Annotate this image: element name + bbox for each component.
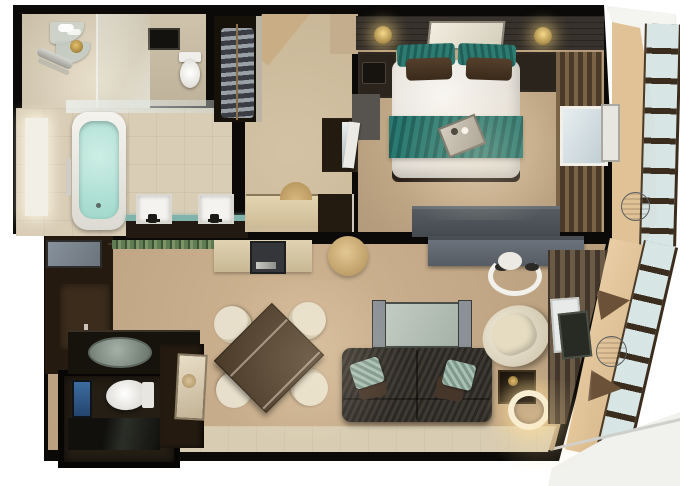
round-pouf — [328, 236, 368, 276]
toiletry-bottles — [58, 24, 74, 32]
coffee-machine-tray — [256, 262, 276, 269]
suite-floorplan — [0, 0, 680, 486]
sconce-left — [374, 26, 392, 44]
bathtub-drain — [96, 203, 101, 208]
ceiling-vent — [148, 28, 180, 50]
sofa-seam — [416, 350, 418, 420]
tile-walkway-lines — [172, 426, 556, 452]
side-table-decor — [508, 376, 518, 386]
balcony-round-table-upper — [621, 192, 650, 221]
nightstand-right — [514, 52, 558, 92]
shower-screen-panel — [25, 118, 48, 216]
guest-toilet-tank — [142, 382, 154, 408]
faucet-left — [148, 214, 157, 223]
towel-bar — [66, 158, 71, 196]
mosaic-backsplash — [112, 240, 216, 249]
bedroom-dresser — [412, 206, 560, 237]
kitchenette-counter — [46, 240, 102, 268]
glass-partition — [96, 14, 150, 108]
glass-tray — [88, 337, 152, 368]
living-window-pane — [558, 311, 593, 360]
faucet-right — [210, 214, 219, 223]
entry-wall-tan — [330, 14, 358, 54]
telephone — [362, 62, 386, 84]
balcony-window-frame — [601, 104, 620, 162]
coffee-table-frame-left — [372, 300, 386, 348]
sconce-right — [534, 27, 552, 45]
pillow-brown-left — [406, 57, 453, 81]
pillow-brown-right — [466, 57, 513, 81]
entry-lower-cabinet — [318, 194, 354, 232]
framed-blue-art — [72, 380, 92, 418]
closet-trim — [256, 16, 262, 122]
closet-rod — [236, 24, 238, 120]
toilet-upper-bowl — [180, 60, 200, 88]
coffee-table-frame-right — [458, 300, 472, 348]
coffee-machine — [250, 241, 286, 274]
coffee-table-glass — [378, 302, 466, 348]
ring-lamp — [508, 390, 550, 430]
balcony-side-table — [596, 336, 627, 367]
desk-chair-seat — [498, 252, 522, 270]
guest-toilet-floor — [68, 418, 160, 450]
soap-dish — [70, 40, 83, 53]
